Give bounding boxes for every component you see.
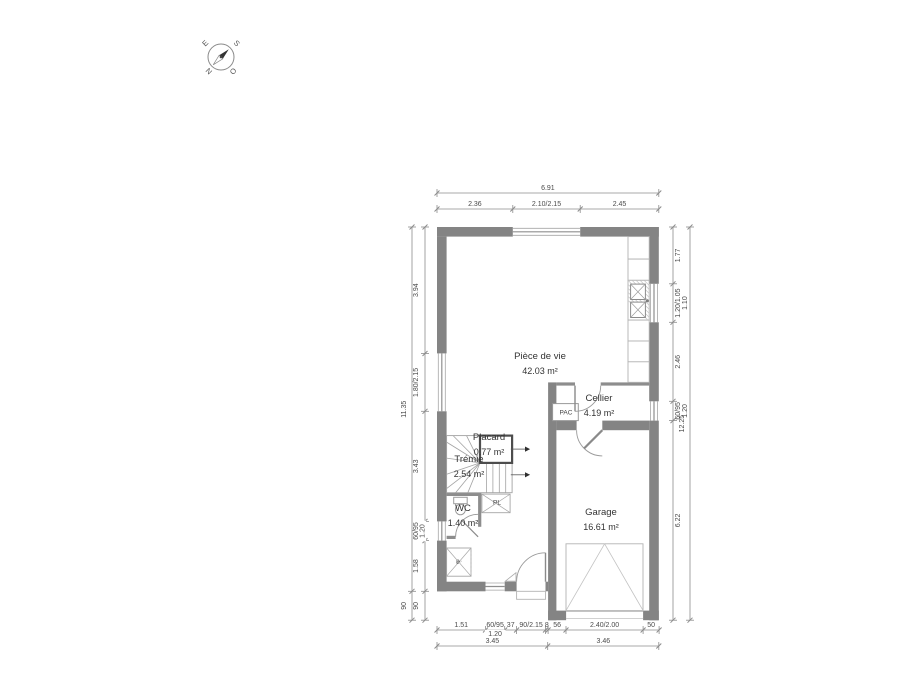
room-name: Trémie	[454, 452, 485, 467]
svg-text:3.45: 3.45	[486, 638, 500, 645]
svg-text:2.36: 2.36	[468, 201, 482, 208]
room-area: 1.40 m²	[448, 516, 479, 531]
room-label-tremie: Trémie 2.54 m²	[454, 452, 485, 482]
svg-text:1.58: 1.58	[413, 559, 420, 573]
svg-text:2.40/2.00: 2.40/2.00	[590, 622, 619, 629]
svg-text:11.35: 11.35	[401, 401, 408, 418]
room-label-garage: Garage 16.61 m²	[583, 505, 619, 535]
floor-plan: 6.912.362.10/2.152.4511.35903.941.80/2.1…	[0, 0, 902, 678]
garage-door	[566, 544, 643, 619]
svg-text:1.20: 1.20	[488, 631, 502, 638]
svg-text:56: 56	[553, 622, 561, 629]
svg-text:3.94: 3.94	[413, 283, 420, 297]
room-label-wc: WC 1.40 m²	[448, 501, 479, 531]
closet-pl-label: PL	[493, 500, 501, 507]
svg-text:50: 50	[647, 622, 655, 629]
svg-text:12.25: 12.25	[679, 415, 686, 433]
doors	[456, 386, 603, 582]
pac-unit-label: PAC	[560, 410, 573, 417]
floor-plan-drawing: 6.912.362.10/2.152.4511.35903.941.80/2.1…	[0, 0, 902, 678]
svg-text:3.43: 3.43	[413, 459, 420, 473]
svg-text:90: 90	[401, 602, 408, 610]
svg-text:1.20: 1.20	[420, 524, 427, 538]
svg-text:2.10/2.15: 2.10/2.15	[532, 201, 561, 208]
room-area: 4.19 m²	[584, 406, 615, 421]
svg-text:1.20/1.05: 1.20/1.05	[675, 288, 682, 317]
kitchen-sink-icon	[608, 280, 716, 320]
room-name: Cellier	[584, 391, 615, 406]
svg-text:2.46: 2.46	[675, 355, 682, 369]
svg-text:1.77: 1.77	[675, 248, 682, 262]
svg-text:8: 8	[545, 622, 549, 629]
svg-text:1.10: 1.10	[682, 296, 689, 310]
room-area: 42.03 m²	[514, 364, 566, 379]
svg-text:90: 90	[413, 602, 420, 610]
svg-text:3.46: 3.46	[596, 638, 610, 645]
room-label-piece-de-vie: Pièce de vie 42.03 m²	[514, 349, 566, 379]
svg-text:60/95: 60/95	[486, 622, 504, 629]
svg-text:6.22: 6.22	[675, 513, 682, 527]
room-name: Pièce de vie	[514, 349, 566, 364]
room-name: Placard	[473, 430, 505, 445]
windows	[438, 228, 657, 590]
room-name: WC	[448, 501, 479, 516]
svg-text:37: 37	[507, 622, 515, 629]
room-name: Garage	[583, 505, 619, 520]
svg-text:1.80/2.15: 1.80/2.15	[413, 368, 420, 397]
svg-text:6.91: 6.91	[541, 185, 555, 192]
room-label-cellier: Cellier 4.19 m²	[584, 391, 615, 421]
svg-text:1.51: 1.51	[454, 622, 468, 629]
svg-text:2.45: 2.45	[613, 201, 627, 208]
room-area: 2.54 m²	[454, 467, 485, 482]
room-area: 16.61 m²	[583, 520, 619, 535]
svg-text:90/2.15: 90/2.15	[519, 622, 542, 629]
